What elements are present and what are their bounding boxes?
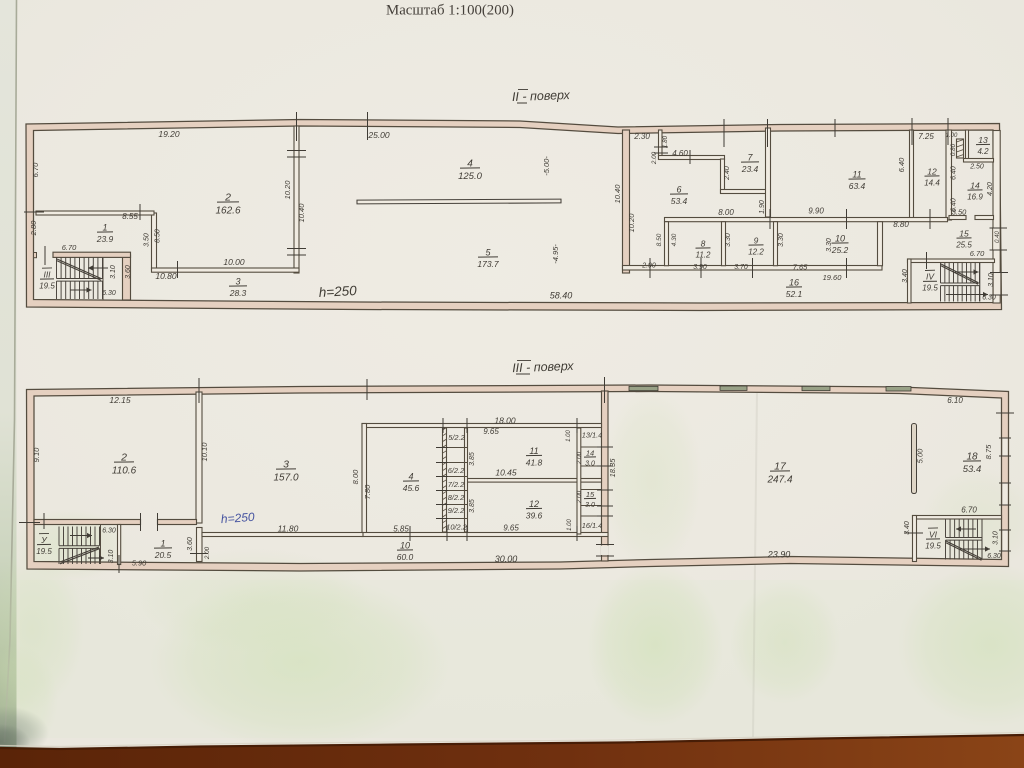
svg-text:9.65: 9.65 — [503, 524, 519, 533]
svg-text:6.70: 6.70 — [31, 162, 40, 177]
svg-text:3.90: 3.90 — [693, 264, 707, 271]
svg-text:25.2: 25.2 — [831, 245, 849, 255]
svg-text:5.90: 5.90 — [132, 559, 147, 568]
svg-text:4.60: 4.60 — [672, 149, 688, 158]
svg-text:2.40: 2.40 — [724, 166, 731, 181]
svg-text:15: 15 — [586, 490, 595, 499]
svg-text:162.6: 162.6 — [215, 205, 240, 216]
svg-text:7.80: 7.80 — [363, 484, 372, 499]
svg-text:53.4: 53.4 — [963, 464, 982, 475]
svg-text:11.80: 11.80 — [278, 524, 299, 534]
svg-text:3.60: 3.60 — [125, 265, 132, 279]
svg-text:16.9: 16.9 — [967, 192, 983, 201]
svg-text:IV: IV — [926, 272, 935, 282]
svg-text:19.5: 19.5 — [922, 284, 938, 293]
svg-text:4.30: 4.30 — [671, 233, 678, 246]
svg-text:3.0: 3.0 — [585, 502, 595, 509]
svg-text:1.00: 1.00 — [567, 519, 573, 531]
svg-text:13/1.4: 13/1.4 — [582, 431, 603, 440]
svg-text:1: 1 — [102, 222, 107, 232]
svg-text:3.40: 3.40 — [904, 521, 911, 535]
svg-text:39.6: 39.6 — [526, 510, 543, 520]
svg-text:173.7: 173.7 — [477, 259, 499, 269]
svg-text:8/2.2: 8/2.2 — [448, 493, 464, 502]
svg-text:28.3: 28.3 — [229, 288, 247, 298]
svg-text:20.5: 20.5 — [154, 550, 172, 560]
svg-text:-4.95-: -4.95- — [551, 244, 560, 264]
svg-text:3.30: 3.30 — [826, 238, 833, 252]
svg-text:12.15: 12.15 — [109, 395, 131, 405]
svg-text:9.10: 9.10 — [32, 447, 41, 462]
svg-text:6.30: 6.30 — [987, 553, 1001, 560]
svg-text:6.40: 6.40 — [951, 198, 958, 212]
svg-text:23.90: 23.90 — [767, 550, 791, 560]
svg-text:3.30: 3.30 — [778, 233, 785, 247]
svg-text:6.10: 6.10 — [947, 396, 963, 405]
svg-text:14.4: 14.4 — [924, 178, 940, 187]
svg-text:8.80: 8.80 — [893, 220, 909, 229]
svg-text:10.20: 10.20 — [283, 180, 292, 200]
svg-text:23.9: 23.9 — [96, 234, 114, 244]
svg-text:-5.00-: -5.00- — [542, 156, 551, 176]
svg-text:III: III — [43, 269, 51, 279]
svg-text:1.90: 1.90 — [759, 200, 766, 214]
svg-text:6.30: 6.30 — [982, 295, 996, 302]
svg-text:9.65: 9.65 — [483, 427, 499, 436]
svg-text:6.70: 6.70 — [62, 243, 77, 252]
svg-text:10.45: 10.45 — [495, 468, 517, 478]
svg-text:5.00: 5.00 — [916, 448, 925, 463]
svg-text:7/2.2: 7/2.2 — [448, 480, 464, 489]
svg-text:19.60: 19.60 — [823, 273, 843, 282]
svg-text:III - поверх: III - поверх — [512, 359, 575, 375]
svg-text:3.60: 3.60 — [187, 537, 194, 551]
svg-text:8: 8 — [701, 238, 706, 248]
svg-text:53.4: 53.4 — [671, 196, 688, 206]
svg-text:11: 11 — [529, 446, 538, 456]
svg-text:58.40: 58.40 — [550, 291, 573, 301]
svg-text:13: 13 — [978, 135, 988, 145]
svg-text:6.40: 6.40 — [951, 166, 958, 180]
svg-text:30.00: 30.00 — [495, 554, 518, 564]
svg-text:3.85: 3.85 — [469, 452, 476, 466]
svg-text:2.30: 2.30 — [633, 132, 650, 141]
svg-text:6.40: 6.40 — [897, 157, 906, 172]
svg-text:3: 3 — [235, 276, 240, 286]
svg-text:3.10: 3.10 — [108, 550, 115, 564]
svg-text:8.50: 8.50 — [155, 229, 162, 243]
svg-text:10.20: 10.20 — [627, 213, 636, 233]
svg-text:11: 11 — [852, 169, 861, 179]
svg-text:10.00: 10.00 — [223, 257, 245, 267]
svg-text:h=250: h=250 — [318, 283, 357, 300]
svg-text:3.10: 3.10 — [993, 531, 1000, 545]
svg-text:6.30: 6.30 — [102, 528, 116, 535]
svg-text:10: 10 — [400, 540, 410, 550]
svg-text:4: 4 — [408, 471, 413, 481]
svg-text:11.2: 11.2 — [696, 250, 712, 259]
svg-text:2.50: 2.50 — [969, 164, 984, 171]
svg-text:25.5: 25.5 — [955, 240, 972, 249]
svg-text:2.00: 2.00 — [651, 151, 658, 165]
svg-text:5/2.2: 5/2.2 — [448, 433, 464, 442]
svg-text:0.40: 0.40 — [995, 231, 1001, 243]
svg-text:3.50: 3.50 — [144, 233, 151, 247]
svg-text:1.00: 1.00 — [946, 133, 958, 139]
svg-text:19.20: 19.20 — [158, 129, 180, 139]
svg-text:12: 12 — [927, 166, 937, 176]
svg-text:16/1.4: 16/1.4 — [582, 521, 603, 530]
svg-text:II - поверх: II - поверх — [512, 88, 571, 104]
svg-text:1: 1 — [160, 538, 165, 548]
svg-text:6: 6 — [676, 184, 681, 194]
svg-text:4.2: 4.2 — [977, 147, 989, 156]
svg-text:10.40: 10.40 — [297, 203, 306, 223]
svg-text:10: 10 — [835, 233, 845, 243]
svg-text:3.40: 3.40 — [902, 269, 909, 283]
svg-text:60.0: 60.0 — [397, 552, 414, 562]
svg-text:12.2: 12.2 — [748, 247, 764, 256]
svg-text:8.00: 8.00 — [351, 469, 360, 484]
svg-text:2.00: 2.00 — [576, 490, 583, 504]
svg-text:3.85: 3.85 — [469, 499, 476, 513]
svg-text:2.00: 2.00 — [204, 546, 211, 560]
svg-text:45.6: 45.6 — [403, 483, 420, 493]
svg-text:247.4: 247.4 — [766, 474, 792, 485]
svg-text:19.5: 19.5 — [36, 547, 52, 556]
svg-text:0.80: 0.80 — [950, 143, 957, 156]
svg-text:6.30: 6.30 — [102, 290, 116, 297]
svg-text:10.10: 10.10 — [200, 442, 209, 462]
svg-text:23.4: 23.4 — [741, 164, 759, 174]
svg-text:3.10: 3.10 — [988, 273, 995, 287]
svg-text:VI: VI — [929, 529, 938, 539]
svg-text:19.5: 19.5 — [925, 541, 941, 550]
svg-text:3.70: 3.70 — [734, 264, 748, 271]
svg-text:9/2.2: 9/2.2 — [448, 506, 464, 515]
svg-text:10.80: 10.80 — [155, 271, 177, 281]
svg-text:10/2.2: 10/2.2 — [446, 523, 467, 532]
svg-text:12: 12 — [529, 499, 539, 509]
svg-text:7.65: 7.65 — [793, 263, 808, 272]
svg-text:2.00: 2.00 — [576, 451, 583, 465]
svg-text:1.00: 1.00 — [566, 430, 572, 442]
svg-text:3.10: 3.10 — [110, 265, 117, 279]
svg-text:63.4: 63.4 — [849, 181, 866, 191]
svg-text:6.70: 6.70 — [961, 506, 977, 515]
svg-text:6.70: 6.70 — [970, 249, 985, 258]
svg-text:15: 15 — [959, 228, 969, 238]
svg-text:8.75: 8.75 — [984, 444, 993, 459]
svg-text:41.8: 41.8 — [526, 457, 543, 467]
svg-text:8.00: 8.00 — [718, 208, 734, 217]
svg-text:h=250: h=250 — [220, 510, 255, 526]
svg-text:157.0: 157.0 — [273, 472, 298, 483]
svg-text:18.00: 18.00 — [494, 416, 516, 426]
svg-text:18.35: 18.35 — [608, 458, 617, 478]
svg-text:2.90: 2.90 — [641, 263, 656, 270]
svg-text:19.5: 19.5 — [39, 281, 55, 290]
svg-text:16: 16 — [789, 277, 799, 287]
svg-text:3.30: 3.30 — [725, 233, 732, 247]
svg-text:5.85: 5.85 — [393, 525, 409, 534]
svg-text:14: 14 — [970, 180, 980, 190]
svg-text:52.1: 52.1 — [786, 289, 803, 299]
svg-text:4.20: 4.20 — [987, 182, 994, 196]
svg-text:Масштаб 1:100(200): Масштаб 1:100(200) — [386, 3, 514, 19]
svg-text:3.0: 3.0 — [585, 460, 595, 467]
svg-text:10.40: 10.40 — [613, 184, 622, 204]
svg-text:125.0: 125.0 — [458, 171, 482, 182]
svg-text:6/2.2: 6/2.2 — [448, 466, 464, 475]
svg-text:8.55: 8.55 — [122, 212, 138, 221]
svg-text:1.80: 1.80 — [662, 135, 669, 148]
svg-text:110.6: 110.6 — [112, 465, 137, 476]
svg-text:9.90: 9.90 — [808, 207, 824, 216]
svg-text:7.25: 7.25 — [918, 132, 934, 141]
svg-text:9: 9 — [754, 235, 759, 245]
svg-text:25.00: 25.00 — [367, 130, 390, 140]
svg-text:8.50: 8.50 — [656, 233, 663, 246]
svg-text:14: 14 — [586, 448, 594, 457]
svg-text:2.80: 2.80 — [29, 220, 38, 236]
